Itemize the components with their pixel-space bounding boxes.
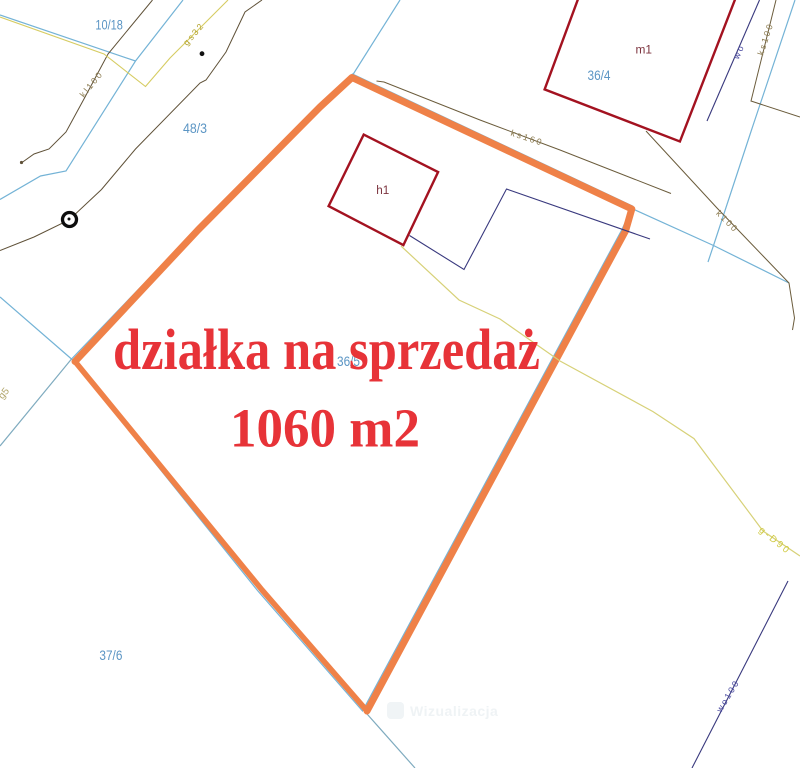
svg-text:37/6: 37/6 — [99, 648, 122, 663]
svg-text:1060 m2: 1060 m2 — [230, 398, 420, 459]
svg-text:m1: m1 — [636, 45, 653, 57]
svg-text:36/4: 36/4 — [588, 68, 611, 83]
svg-text:działka na sprzedaż: działka na sprzedaż — [113, 317, 540, 382]
svg-text:10/18: 10/18 — [95, 17, 123, 32]
svg-text:h1: h1 — [376, 185, 389, 197]
svg-text:48/3: 48/3 — [183, 121, 207, 136]
svg-text:Wizualizacja: Wizualizacja — [410, 703, 498, 719]
